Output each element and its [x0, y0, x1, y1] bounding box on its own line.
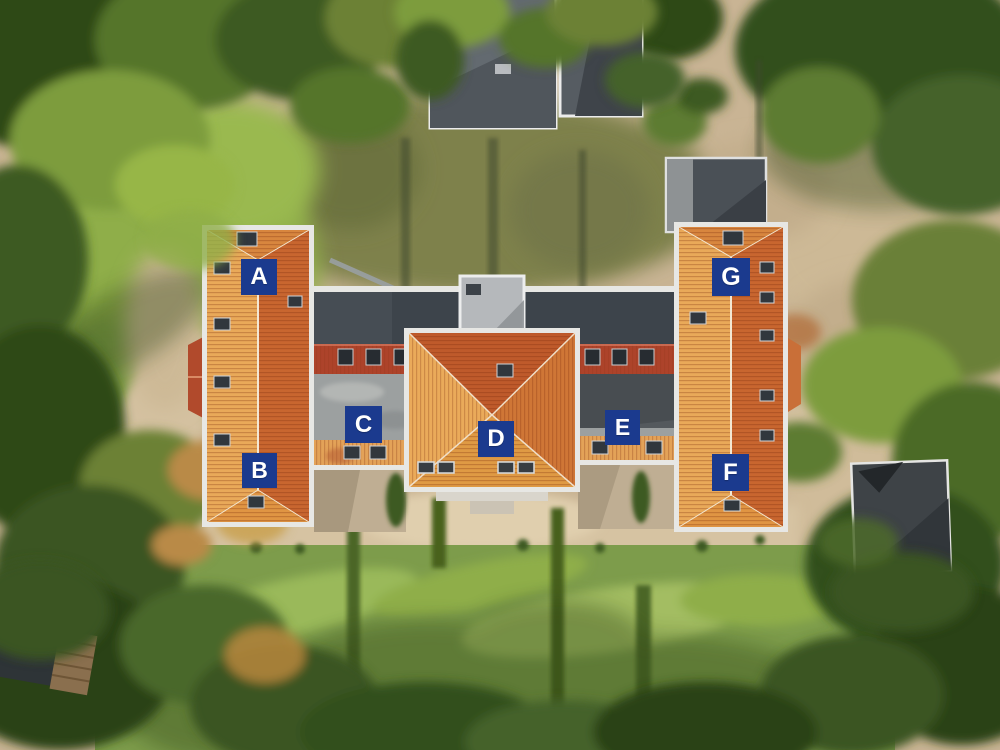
screenshot-root: A B C D E F G: [0, 0, 1000, 750]
unit-marker-d: D: [478, 421, 514, 457]
unit-marker-c: C: [345, 406, 382, 443]
aerial-photo-illustration: [0, 0, 1000, 750]
unit-marker-e: E: [605, 410, 640, 445]
unit-marker-letter: D: [487, 425, 504, 453]
unit-marker-letter: B: [251, 457, 268, 484]
unit-marker-g: G: [712, 258, 750, 296]
unit-marker-f: F: [712, 454, 749, 491]
unit-marker-a: A: [241, 259, 277, 295]
unit-marker-b: B: [242, 453, 277, 488]
unit-marker-letter: F: [723, 459, 738, 487]
unit-marker-letter: E: [615, 414, 630, 441]
unit-marker-letter: G: [721, 263, 740, 292]
unit-marker-letter: C: [355, 411, 372, 439]
unit-marker-letter: A: [250, 263, 267, 291]
